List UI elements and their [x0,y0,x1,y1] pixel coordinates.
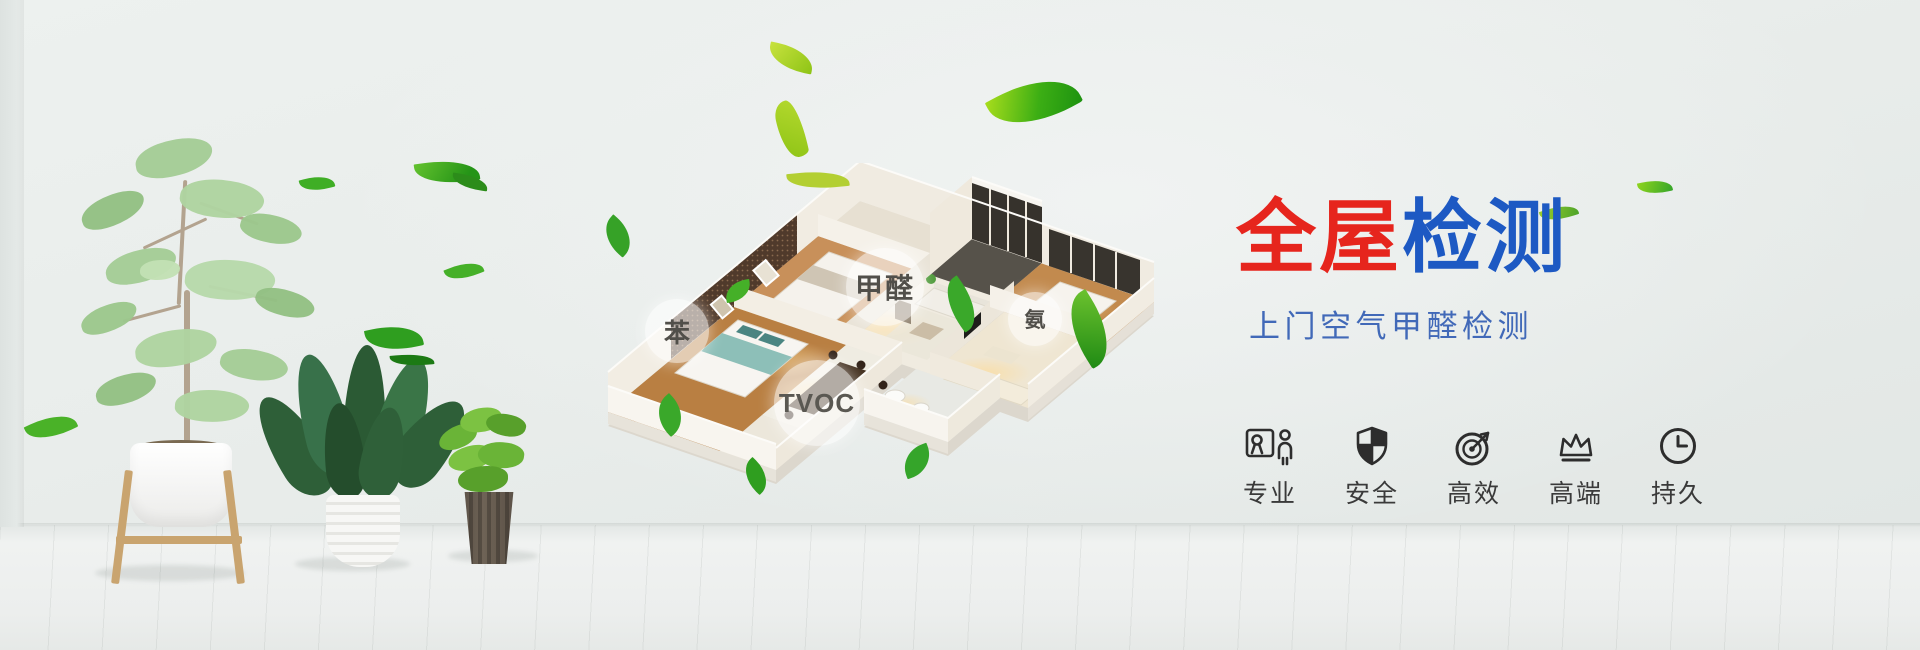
feature-highend: 高端 [1538,420,1614,510]
page-subtitle: 上门空气甲醛检测 [1249,301,1533,346]
feature-label: 安全 [1345,474,1399,510]
promo-banner: 苯 甲醛 TVOC 氨 全屋检测 上门空气甲醛检测 [0,0,1920,650]
pollutant-label-ammonia: 氨 [1008,292,1062,346]
shield-icon [1350,420,1394,468]
pot-stand-leg [111,470,133,584]
foliage [77,297,140,340]
title-blue-part: 检测 [1402,193,1568,282]
feature-professional: 专业 [1232,420,1308,510]
feature-label: 专业 [1243,474,1297,510]
potted-plant-small [438,408,538,568]
foliage [133,326,218,370]
crown-icon [1554,420,1598,468]
feature-label: 高效 [1447,474,1501,510]
pot-stand-bar [116,536,242,544]
gauge-icon [1452,420,1496,468]
foliage [77,185,149,236]
feature-label: 持久 [1651,474,1705,510]
feature-lasting: 持久 [1640,420,1716,510]
dark-ribbed-pot [460,492,518,564]
wall-corner-edge [0,0,24,527]
feature-row: 专业 安全 高效 [1232,420,1716,510]
tree-trunk [184,290,190,455]
pot-stand-leg [223,470,245,584]
plant-leaf [458,466,508,492]
foliage [93,368,160,410]
pollutant-text: 甲醛 [855,267,915,307]
pollutant-label-formaldehyde: 甲醛 [846,248,924,326]
foliage [132,134,215,183]
title-red-part: 全屋 [1236,193,1402,282]
clock-icon [1656,420,1700,468]
pollutant-text: 氨 [1025,304,1046,334]
foliage [237,207,304,250]
page-title: 全屋检测 [1236,196,1568,280]
certificate-person-icon [1244,420,1296,468]
pollutant-label-benzene: 苯 [645,299,709,363]
white-ribbed-pot [326,495,400,567]
feature-efficient: 高效 [1436,420,1512,510]
potted-plant-medium [262,345,457,573]
foliage [140,260,180,280]
feature-safety: 安全 [1334,420,1410,510]
pollutant-text: TVOC [779,388,855,419]
feature-label: 高端 [1549,474,1603,510]
pollutant-label-tvoc: TVOC [774,360,860,446]
white-pot [130,443,232,527]
pollutant-text: 苯 [664,313,690,350]
house-3d-model: 苯 甲醛 TVOC 氨 [565,163,1185,543]
foliage [252,281,317,324]
tree-branch [143,217,208,249]
